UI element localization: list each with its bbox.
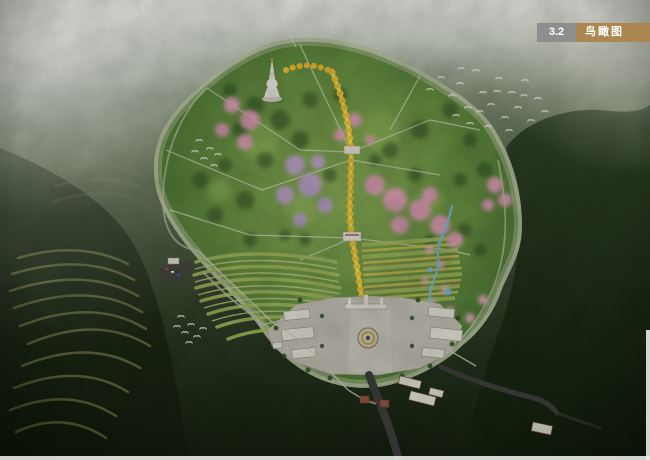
section-title: 鸟瞰图 xyxy=(576,23,650,42)
section-number: 3.2 xyxy=(537,23,576,42)
bottom-edge-strip xyxy=(0,456,650,460)
aerial-view-page: 3.2 鸟瞰图 xyxy=(0,0,650,460)
right-edge-strip xyxy=(646,330,650,460)
section-tag: 3.2 鸟瞰图 xyxy=(537,23,650,42)
texture-overlays xyxy=(0,0,650,460)
